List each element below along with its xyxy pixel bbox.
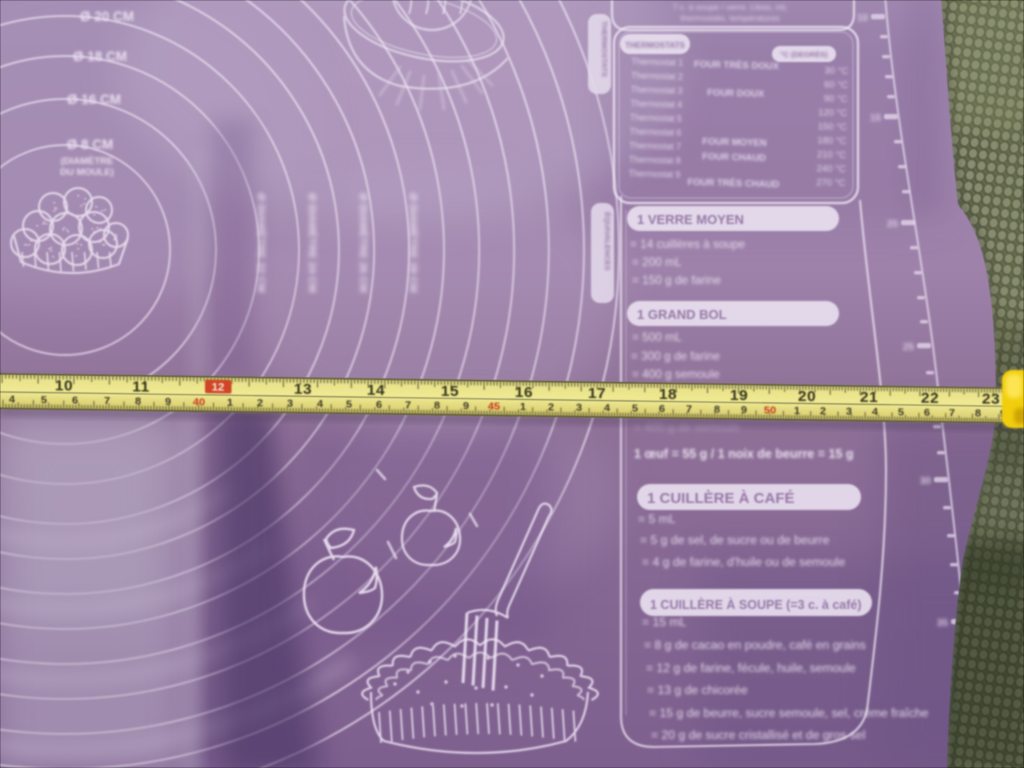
svg-text:5: 5 (346, 399, 352, 411)
svg-text:5: 5 (898, 407, 904, 419)
svg-text:Ø DIAMÈTRE 26 CM: Ø DIAMÈTRE 26 CM (357, 193, 370, 293)
svg-text:6: 6 (924, 407, 930, 419)
svg-text:Ø DIAMÈTRE 22 CM: Ø DIAMÈTRE 22 CM (255, 193, 268, 293)
svg-text:= 5 g de sel, de sucre ou de b: = 5 g de sel, de sucre ou de beurre (640, 533, 830, 547)
svg-text:22: 22 (921, 390, 939, 407)
svg-text:20: 20 (887, 219, 899, 230)
svg-text:25: 25 (903, 342, 915, 353)
svg-text:= 15 g de beurre, sucre semoul: = 15 g de beurre, sucre semoule, sel, cr… (649, 706, 929, 720)
svg-text:60 °C: 60 °C (824, 79, 848, 91)
svg-text:3: 3 (846, 406, 852, 418)
svg-text:21: 21 (860, 389, 878, 406)
svg-text:= 8 g de cacao en poudre, café: = 8 g de cacao en poudre, café en grains (644, 638, 866, 652)
svg-text:9: 9 (741, 404, 747, 416)
svg-text:15: 15 (870, 113, 882, 124)
svg-text:°C (DEGRÉS): °C (DEGRÉS) (780, 50, 828, 59)
svg-text:= 150 g de farine: = 150 g de farine (632, 273, 721, 287)
svg-text:Thermostat 3: Thermostat 3 (631, 84, 683, 95)
svg-text:1 VERRE MOYEN: 1 VERRE MOYEN (637, 212, 744, 227)
svg-text:3: 3 (287, 398, 293, 410)
svg-text:16: 16 (515, 384, 533, 401)
svg-text:Ø 16 CM: Ø 16 CM (67, 92, 121, 107)
svg-text:8: 8 (434, 400, 440, 412)
svg-text:= 13 g de chicorée: = 13 g de chicorée (647, 683, 748, 697)
svg-text:11: 11 (132, 379, 149, 396)
svg-text:4: 4 (9, 394, 15, 406)
svg-text:19: 19 (730, 387, 748, 404)
svg-text:17: 17 (588, 385, 606, 402)
svg-text:2: 2 (257, 398, 263, 410)
svg-text:FOUR MOYEN: FOUR MOYEN (702, 136, 767, 149)
svg-text:120 °C: 120 °C (818, 107, 848, 119)
svg-text:6: 6 (659, 403, 665, 415)
svg-text:= 12 g de farine, fécule, huil: = 12 g de farine, fécule, huile, semoule (646, 661, 856, 675)
svg-text:30: 30 (920, 476, 932, 487)
svg-text:6: 6 (376, 399, 382, 411)
svg-text:1: 1 (520, 401, 526, 413)
svg-text:= 4 g de farine, d'huile ou de: = 4 g de farine, d'huile ou de semoule (642, 555, 845, 569)
svg-text:THERMOSTATS: THERMOSTATS (600, 21, 609, 77)
svg-text:13: 13 (294, 381, 312, 398)
svg-text:12: 12 (212, 382, 225, 394)
svg-text:2: 2 (548, 402, 554, 414)
svg-text:6: 6 (72, 395, 78, 407)
svg-text:7: 7 (949, 407, 955, 419)
svg-text:= 300 g de farine: = 300 g de farine (631, 349, 720, 363)
svg-text:= 14 cuillères à soupe: = 14 cuillères à soupe (630, 237, 746, 251)
svg-text:(DIAMÈTRE: (DIAMÈTRE (61, 156, 114, 167)
svg-text:7 c. à soupe / verre. Litres,: 7 c. à soupe / verre. Litres, mL (673, 2, 788, 12)
svg-text:1: 1 (227, 397, 233, 409)
svg-text:Thermostat 8: Thermostat 8 (629, 154, 681, 165)
svg-text:DU MOULE): DU MOULE) (60, 167, 114, 178)
svg-text:1 CUILLÈRE À SOUPE (=3 c. à ca: 1 CUILLÈRE À SOUPE (=3 c. à café) (650, 597, 862, 612)
svg-text:1 CUILLÈRE À CAFÉ: 1 CUILLÈRE À CAFÉ (647, 490, 795, 507)
svg-text:= 200 mL: = 200 mL (632, 255, 682, 269)
svg-text:Thermostat 7: Thermostat 7 (629, 140, 681, 151)
svg-text:50: 50 (764, 405, 776, 417)
svg-text:240 °C: 240 °C (816, 163, 846, 175)
svg-text:Thermostat 1: Thermostat 1 (631, 56, 683, 67)
svg-text:8: 8 (714, 404, 720, 416)
svg-text:15: 15 (441, 383, 459, 400)
svg-text:4: 4 (604, 403, 610, 415)
svg-text:45: 45 (488, 401, 500, 413)
svg-text:90 °C: 90 °C (824, 93, 848, 105)
svg-text:2: 2 (820, 406, 826, 418)
svg-text:Ø DIAMÈTRE 28 CM: Ø DIAMÈTRE 28 CM (407, 193, 420, 293)
svg-text:4: 4 (872, 406, 878, 418)
svg-text:210 °C: 210 °C (817, 149, 847, 161)
svg-text:10: 10 (857, 13, 869, 24)
svg-text:= 400 g semoule: = 400 g semoule (632, 367, 720, 381)
svg-text:20: 20 (798, 388, 816, 405)
svg-text:5: 5 (632, 403, 638, 415)
svg-text:150 °C: 150 °C (818, 121, 848, 133)
svg-text:Ø 8 CM: Ø 8 CM (67, 137, 114, 152)
svg-text:= 15 mL: = 15 mL (642, 615, 687, 629)
svg-text:Ø 20 CM: Ø 20 CM (80, 9, 134, 24)
svg-text:23: 23 (982, 391, 1000, 408)
svg-text:35: 35 (937, 618, 949, 629)
svg-text:7: 7 (104, 395, 110, 407)
svg-text:thermostats, températures: thermostats, températures (680, 13, 779, 23)
svg-text:5: 5 (41, 394, 47, 406)
svg-text:FOUR DOUX: FOUR DOUX (707, 87, 765, 100)
svg-text:10: 10 (55, 378, 73, 395)
svg-text:= 20 g de sucre cristallisé et: = 20 g de sucre cristallisé et de gros s… (651, 728, 865, 742)
svg-text:1: 1 (794, 405, 800, 417)
svg-text:Thermostat 9: Thermostat 9 (628, 168, 680, 179)
svg-text:7: 7 (405, 400, 411, 412)
svg-text:40: 40 (193, 397, 205, 409)
svg-text:270 °C: 270 °C (816, 177, 846, 189)
svg-text:7: 7 (686, 404, 692, 416)
svg-text:14: 14 (367, 382, 385, 399)
svg-text:9: 9 (463, 401, 469, 413)
svg-text:8: 8 (975, 408, 981, 420)
svg-text:THERMOSTATS: THERMOSTATS (625, 41, 685, 50)
svg-text:Ø DIAMÈTRE 24 CM: Ø DIAMÈTRE 24 CM (306, 193, 319, 293)
svg-text:= 500 mL: = 500 mL (632, 330, 682, 344)
svg-text:FOUR CHAUD: FOUR CHAUD (702, 151, 766, 164)
svg-text:Thermostat 4: Thermostat 4 (630, 98, 682, 109)
svg-text:8: 8 (135, 396, 141, 408)
svg-text:Thermostat 2: Thermostat 2 (631, 70, 683, 81)
svg-text:30 °C: 30 °C (824, 65, 848, 77)
svg-text:Thermostat 5: Thermostat 5 (630, 112, 682, 123)
svg-text:1 GRAND BOL: 1 GRAND BOL (637, 307, 727, 322)
svg-text:18: 18 (659, 386, 677, 403)
svg-text:ÉQUIVALENCES: ÉQUIVALENCES (603, 212, 612, 271)
svg-text:Thermostat 6: Thermostat 6 (630, 126, 682, 137)
svg-text:3: 3 (576, 402, 582, 414)
svg-text:= 5 mL: = 5 mL (638, 512, 676, 526)
svg-text:1 œuf = 55 g / 1 noix de beurr: 1 œuf = 55 g / 1 noix de beurre = 15 g (634, 447, 854, 461)
svg-text:Ø 18 CM: Ø 18 CM (73, 49, 127, 64)
svg-text:180 °C: 180 °C (817, 135, 847, 147)
svg-text:4: 4 (317, 398, 323, 410)
svg-text:FOUR TRÈS DOUX: FOUR TRÈS DOUX (694, 59, 780, 72)
svg-text:9: 9 (165, 396, 171, 408)
